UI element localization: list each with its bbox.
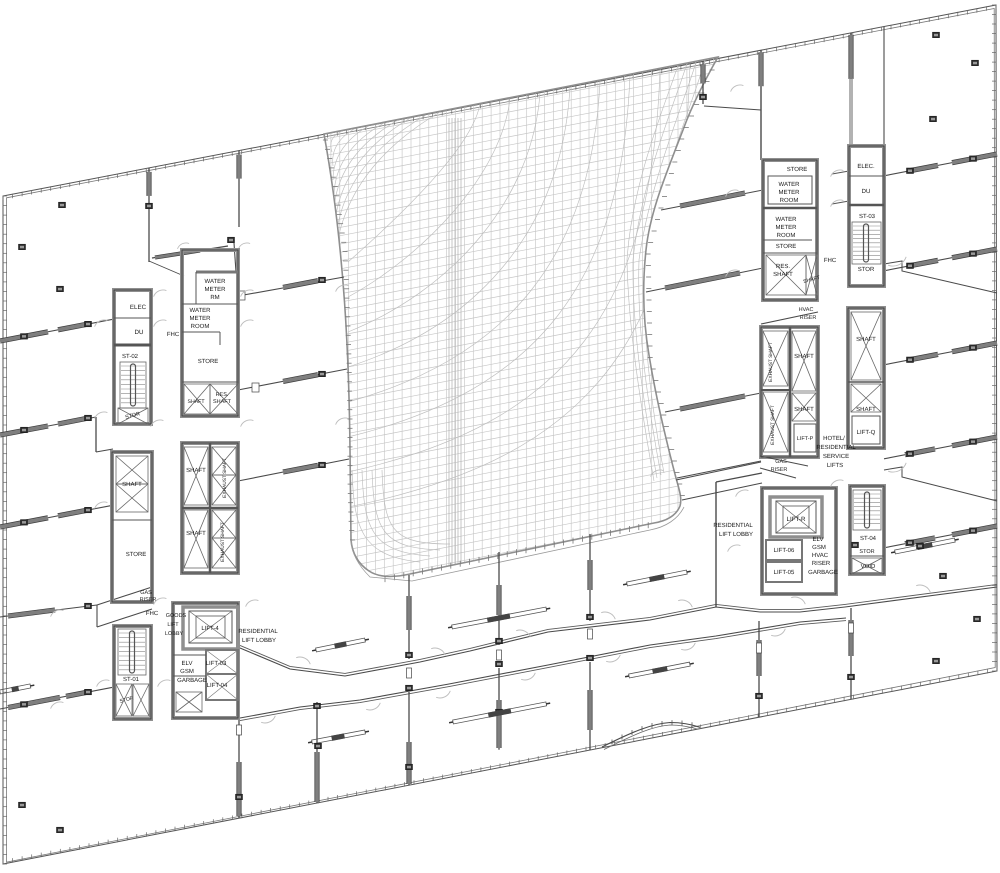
svg-text:STOR: STOR bbox=[858, 266, 875, 273]
svg-text:LIFT LOBBY: LIFT LOBBY bbox=[242, 637, 276, 644]
svg-text:SHAFT: SHAFT bbox=[856, 336, 876, 343]
svg-text:LIFTS: LIFTS bbox=[827, 462, 843, 469]
svg-text:ELV: ELV bbox=[813, 536, 824, 543]
svg-text:GAS: GAS bbox=[140, 590, 152, 596]
svg-text:ROOM: ROOM bbox=[777, 232, 796, 239]
svg-text:STORE: STORE bbox=[787, 166, 808, 173]
svg-text:ST-04: ST-04 bbox=[860, 535, 877, 542]
svg-text:RISER: RISER bbox=[812, 560, 831, 567]
svg-text:ROOM: ROOM bbox=[191, 323, 210, 330]
svg-text:GSM: GSM bbox=[812, 544, 826, 551]
svg-text:ELEC: ELEC bbox=[130, 304, 147, 311]
svg-text:GARBAGE: GARBAGE bbox=[808, 569, 838, 576]
svg-text:GOODS: GOODS bbox=[166, 613, 187, 619]
svg-text:WATER: WATER bbox=[776, 216, 798, 223]
svg-text:SHAFT: SHAFT bbox=[856, 406, 876, 413]
svg-text:STOR: STOR bbox=[859, 549, 874, 555]
svg-text:DU: DU bbox=[862, 188, 871, 195]
svg-text:WATER: WATER bbox=[205, 278, 227, 285]
svg-text:RESIDENTIAL: RESIDENTIAL bbox=[816, 444, 856, 451]
svg-text:RM: RM bbox=[210, 294, 219, 301]
svg-text:ELV: ELV bbox=[182, 660, 193, 667]
svg-text:ST-03: ST-03 bbox=[859, 213, 876, 220]
svg-text:GARBAGE: GARBAGE bbox=[177, 677, 207, 684]
svg-text:STORE: STORE bbox=[776, 243, 797, 250]
svg-text:LIFT: LIFT bbox=[167, 622, 179, 628]
svg-text:HVAC: HVAC bbox=[812, 552, 829, 559]
svg-text:FHC: FHC bbox=[824, 257, 837, 264]
svg-text:SHAFT: SHAFT bbox=[187, 399, 205, 405]
svg-text:SHAFT: SHAFT bbox=[213, 399, 232, 405]
svg-text:HOTEL/: HOTEL/ bbox=[823, 435, 845, 442]
svg-text:FHC: FHC bbox=[167, 331, 180, 338]
svg-text:LIFT-06: LIFT-06 bbox=[774, 547, 795, 554]
svg-text:EXHAUST SHAFT: EXHAUST SHAFT bbox=[768, 342, 774, 382]
svg-text:RESIDENTIAL: RESIDENTIAL bbox=[713, 522, 753, 529]
svg-text:DU: DU bbox=[135, 329, 144, 336]
svg-text:WATER: WATER bbox=[190, 307, 212, 314]
svg-text:ROOM: ROOM bbox=[780, 197, 799, 204]
svg-text:VOID: VOID bbox=[861, 563, 876, 570]
svg-text:SHAFT: SHAFT bbox=[122, 481, 142, 488]
svg-text:STORE: STORE bbox=[198, 358, 219, 365]
svg-text:METER: METER bbox=[779, 189, 801, 196]
svg-text:LIFT LOBBY: LIFT LOBBY bbox=[719, 531, 753, 538]
svg-text:EXHAUST SHAFT: EXHAUST SHAFT bbox=[222, 458, 228, 498]
svg-text:ST-02: ST-02 bbox=[122, 353, 139, 360]
svg-text:METER: METER bbox=[190, 315, 212, 322]
svg-text:SHAFT: SHAFT bbox=[773, 271, 793, 278]
svg-text:RES.: RES. bbox=[216, 392, 229, 398]
svg-text:HVAC: HVAC bbox=[799, 307, 814, 313]
svg-text:EXHAUST SHAFT: EXHAUST SHAFT bbox=[220, 522, 226, 562]
svg-text:GSM: GSM bbox=[180, 668, 194, 675]
svg-text:SHAFT: SHAFT bbox=[186, 530, 206, 537]
svg-text:WATER: WATER bbox=[779, 181, 801, 188]
svg-text:SHAFT: SHAFT bbox=[794, 353, 814, 360]
svg-text:ELEC.: ELEC. bbox=[857, 163, 875, 170]
svg-text:STORE: STORE bbox=[126, 551, 147, 558]
svg-text:LIFT-04: LIFT-04 bbox=[207, 682, 228, 689]
svg-text:SHAFT: SHAFT bbox=[186, 467, 206, 474]
svg-text:SERVICE: SERVICE bbox=[823, 453, 849, 460]
svg-text:LIFT-05: LIFT-05 bbox=[774, 569, 795, 576]
svg-text:ST-01: ST-01 bbox=[123, 676, 140, 683]
svg-text:EXHAUST SHAFT: EXHAUST SHAFT bbox=[770, 405, 776, 445]
svg-text:METER: METER bbox=[776, 224, 798, 231]
svg-text:FHC: FHC bbox=[146, 610, 159, 617]
svg-text:METER: METER bbox=[205, 286, 227, 293]
svg-text:LOBBY: LOBBY bbox=[165, 631, 184, 637]
svg-text:LIFT-P: LIFT-P bbox=[797, 436, 814, 442]
svg-text:RESIDENTIAL: RESIDENTIAL bbox=[238, 628, 278, 635]
svg-text:LIFT-4: LIFT-4 bbox=[201, 625, 219, 632]
svg-text:LIFT-03: LIFT-03 bbox=[206, 660, 227, 667]
svg-text:LIFT-R: LIFT-R bbox=[787, 516, 806, 523]
svg-text:RISER: RISER bbox=[140, 597, 157, 603]
svg-text:RES.: RES. bbox=[776, 263, 790, 270]
svg-text:LIFT-Q: LIFT-Q bbox=[857, 429, 876, 436]
svg-text:SHAFT: SHAFT bbox=[794, 406, 814, 413]
